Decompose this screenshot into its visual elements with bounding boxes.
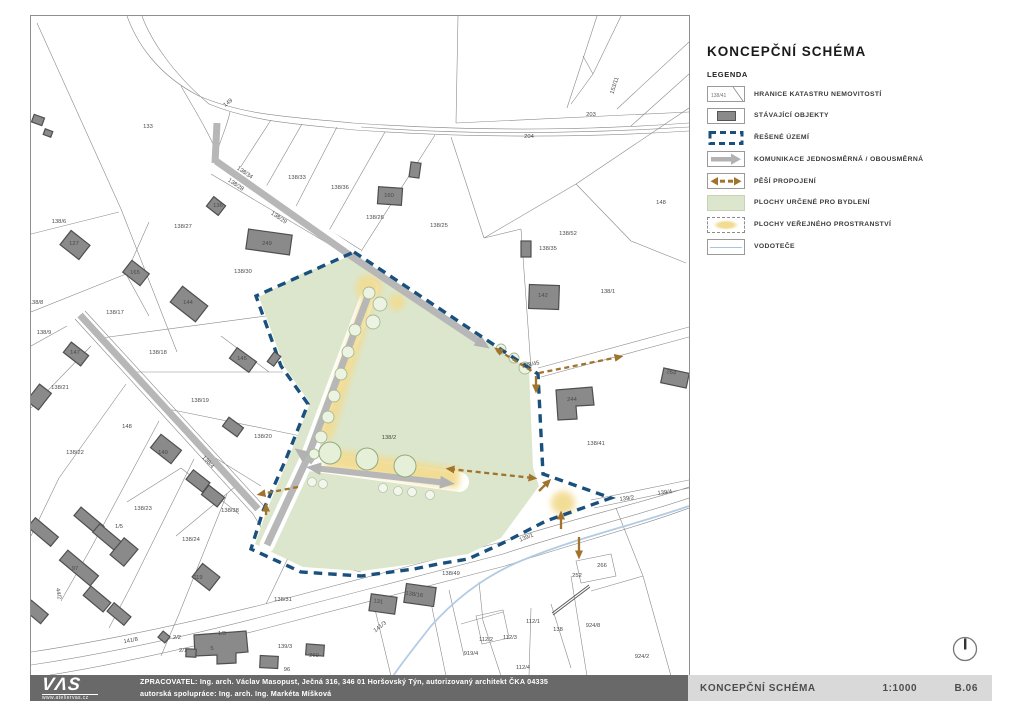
parcel-label: 138/20 [254,434,272,440]
footer-credits: ZPRACOVATEL: Ing. arch. Václav Masopust,… [140,676,548,700]
parcel-label: 138/30 [234,269,252,275]
title-block: KONCEPČNÍ SCHÉMA 1:1000 B.06 [688,675,992,701]
parcel-label: 44/2 [54,588,62,600]
parcel-label: 138/9 [37,330,52,336]
parcel-label: 96 [284,667,290,673]
parcel-label: 139/2 [619,495,634,503]
sheet-number: B.06 [954,683,992,694]
parcel-label: 138/23 [134,506,152,512]
parcel-label: 138/49 [442,571,460,577]
parcel-label: 138/41 [587,441,605,447]
logo-text: VΛS [41,675,115,693]
parcel-label: 138/2 [382,435,397,441]
svg-text:138/41: 138/41 [711,93,727,99]
parcel-label: 139/1 [519,533,535,544]
north-indicator-icon [948,632,982,666]
parcel-label: 266 [597,563,607,569]
parcel-label: 112/4 [516,665,531,671]
cadastral-map-svg: 133149153/11203204148138/33138/36138/261… [31,16,689,677]
page-title: KONCEPČNÍ SCHÉMA [707,44,866,59]
parcel-label: 1/5 [115,524,123,530]
parcel-label: 269 [309,653,319,659]
legend-label: PĚŠÍ PROPOJENÍ [754,178,816,185]
parcel-label: 144 [183,300,193,306]
parcel-label: 138/52 [559,231,577,237]
retaining-wall-line [552,585,590,615]
parcel-label: 138/18 [149,350,167,356]
parcel-label: 148 [656,200,666,206]
legend-label: ŘEŠENÉ ÚZEMÍ [754,134,809,141]
parcel-label: 165 [130,270,140,276]
parcel-label: 112/1 [526,619,540,625]
parcel-label: 153/11 [610,77,621,95]
legend-item-roads: KOMUNIKACE JEDNOSMĚRNÁ / OBOUSMĚRNÁ [707,151,997,167]
parcel-label: 127 [69,241,79,247]
stream-icon [707,239,745,255]
pedestrian-link-icon [707,173,745,189]
parcel-label: 138/17 [106,310,124,316]
parcel-label: 138/27 [174,224,192,230]
parcel-label: 112/2 [479,637,493,643]
parcel-label: 5 [210,646,213,652]
parcel-label: 204 [524,134,534,140]
parcel-label: 138/24 [182,537,201,543]
parcel-label: 138/26 [366,215,384,221]
legend-item-cadastre-boundary: 138/41 HRANICE KATASTRU NEMOVITOSTÍ [707,86,997,102]
legend-item-streams: VODOTEČE [707,239,997,255]
parcel-label: 138/1 [601,289,616,295]
parcel-label: 145 [237,356,247,362]
parcel-label: 138/25 [430,223,448,229]
parcel-label: 138/31 [274,597,292,603]
footer-credits-line2: autorská spolupráce: Ing. arch. Ing. Mar… [140,688,548,700]
parcel-label: 112/3 [503,635,517,641]
legend-item-existing-objects: STÁVAJÍCÍ OBJEKTY [707,108,997,124]
legend-item-residential: PLOCHY URČENÉ PRO BYDLENÍ [707,195,997,211]
parcel-label: 133 [143,124,153,130]
parcel-label: 142 [538,293,548,299]
parcel-label: 138/38 [221,508,239,514]
parcel-label: 139/3 [278,644,293,650]
road-arrow-icon [707,151,745,167]
parcel-label: 138 [553,627,563,633]
sheet-scale: 1:1000 [882,683,954,694]
parcel-label: 924/2 [635,654,650,660]
parcel-label: 138/8 [31,300,43,306]
plan-sheet: { "page_title": "KONCEPČNÍ SCHÉMA", "leg… [0,0,1024,723]
legend-label: PLOCHY VEŘEJNÉHO PROSTRANSTVÍ [754,221,891,228]
parcel-label: 138/22 [66,450,84,456]
parcel-label: 249 [262,241,272,247]
atelier-logo: VΛS www.ateliervas.cz [42,675,114,702]
legend-label: KOMUNIKACE JEDNOSMĚRNÁ / OBOUSMĚRNÁ [754,156,923,163]
legend-item-pedestrian: PĚŠÍ PROPOJENÍ [707,173,997,189]
parcel-label: 136 [213,203,223,209]
parcel-label: 138/21 [51,385,69,391]
cadastre-boundary-icon: 138/41 [707,86,745,102]
parcel-label: 2/2 [173,635,181,641]
parcel-label: 919/4 [464,651,479,657]
legend-heading: LEGENDA [707,70,748,79]
parcel-label: 1/3 [218,631,226,637]
parcel-label: 138/6 [52,219,67,225]
legend-label: PLOCHY URČENÉ PRO BYDLENÍ [754,199,870,206]
legend: 138/41 HRANICE KATASTRU NEMOVITOSTÍ STÁV… [707,86,997,260]
legend-item-solved-territory: ŘEŠENÉ ÚZEMÍ [707,130,997,146]
legend-label: STÁVAJÍCÍ OBJEKTY [754,112,829,119]
footer-bar: VΛS www.ateliervas.cz ZPRACOVATEL: Ing. … [30,675,688,701]
parcel-label: 252 [572,573,582,579]
parcel-label: 203 [586,112,596,118]
parcel-label: 138/35 [539,246,557,252]
parcel-label: 2/1 [179,648,187,654]
solved-territory-icon [707,130,745,146]
parcel-label: 139/4 [657,489,673,497]
parcel-label: 138/33 [288,175,306,181]
footer-credits-line1: ZPRACOVATEL: Ing. arch. Václav Masopust,… [140,676,548,688]
parcel-label: 119 [193,575,202,581]
parcel-label: 149 [158,450,168,456]
map-canvas: 133149153/11203204148138/33138/36138/261… [30,15,690,678]
existing-object-icon [707,108,745,124]
parcel-label: 924/8 [586,623,601,629]
parcel-label: 147 [70,350,80,356]
parcel-label: 160 [384,193,394,199]
public-space-icon [707,217,745,233]
residential-area-icon [707,195,745,211]
parcel-label: 244 [567,397,577,403]
parcel-label: 148 [122,424,132,430]
legend-item-public-space: PLOCHY VEŘEJNÉHO PROSTRANSTVÍ [707,217,997,233]
parcel-label: 138/19 [191,398,209,404]
legend-label: VODOTEČE [754,243,795,250]
parcel-label: 138/36 [331,185,349,191]
parcel-label: 97 [72,566,78,572]
logo-website: www.ateliervas.cz [42,694,98,701]
legend-label: HRANICE KATASTRU NEMOVITOSTÍ [754,91,882,98]
parcel-label: 141/8 [123,637,138,645]
sheet-title: KONCEPČNÍ SCHÉMA [688,683,882,694]
